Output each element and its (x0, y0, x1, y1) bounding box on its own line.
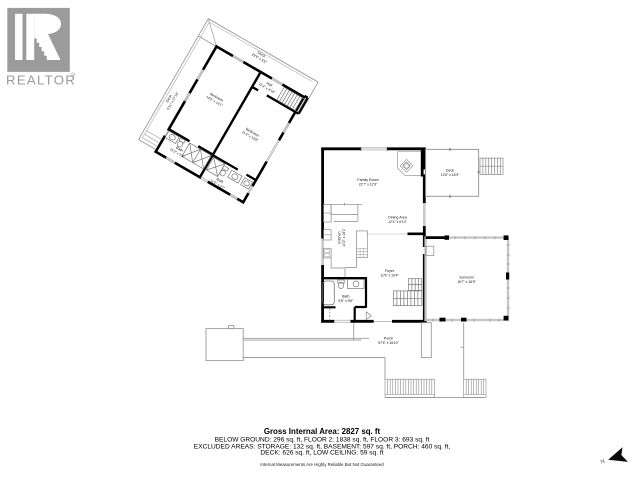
svg-text:Dining Area: Dining Area (388, 216, 407, 220)
svg-text:Internal Measurements Are High: Internal Measurements Are Highly Reliabl… (260, 462, 384, 467)
svg-text:Foyer: Foyer (385, 269, 395, 273)
svg-text:REALTOR: REALTOR (6, 72, 76, 87)
svg-text:12'6" x 16'9": 12'6" x 16'9" (441, 173, 460, 177)
svg-text:12'4" x 6'10": 12'4" x 6'10" (388, 220, 407, 224)
svg-text:11'9" x 19'4": 11'9" x 19'4" (380, 274, 399, 278)
svg-text:57'5" x 16'10": 57'5" x 16'10" (378, 341, 399, 345)
svg-text:Gross Internal Area: 2827 sq.: Gross Internal Area: 2827 sq. ft (264, 427, 381, 436)
svg-text:®: ® (71, 73, 76, 80)
svg-text:Porch: Porch (384, 337, 393, 341)
svg-text:9'5" x 9'6": 9'5" x 9'6" (338, 299, 354, 303)
svg-text:Bath: Bath (342, 295, 349, 299)
svg-text:DECK: 626 sq. ft, LOW CEILING:: DECK: 626 sq. ft, LOW CEILING: 59 sq. ft (260, 449, 383, 456)
svg-text:Kitchen: Kitchen (338, 232, 342, 244)
svg-text:Deck: Deck (446, 169, 454, 173)
svg-text:Family Room: Family Room (357, 178, 378, 182)
svg-text:Sunroom: Sunroom (459, 276, 474, 280)
svg-text:22'7" x 12'3": 22'7" x 12'3" (359, 183, 378, 187)
svg-text:16'7" x 18'9": 16'7" x 18'9" (457, 280, 476, 284)
svg-text:10'2" x 14'1": 10'2" x 14'1" (342, 227, 346, 246)
